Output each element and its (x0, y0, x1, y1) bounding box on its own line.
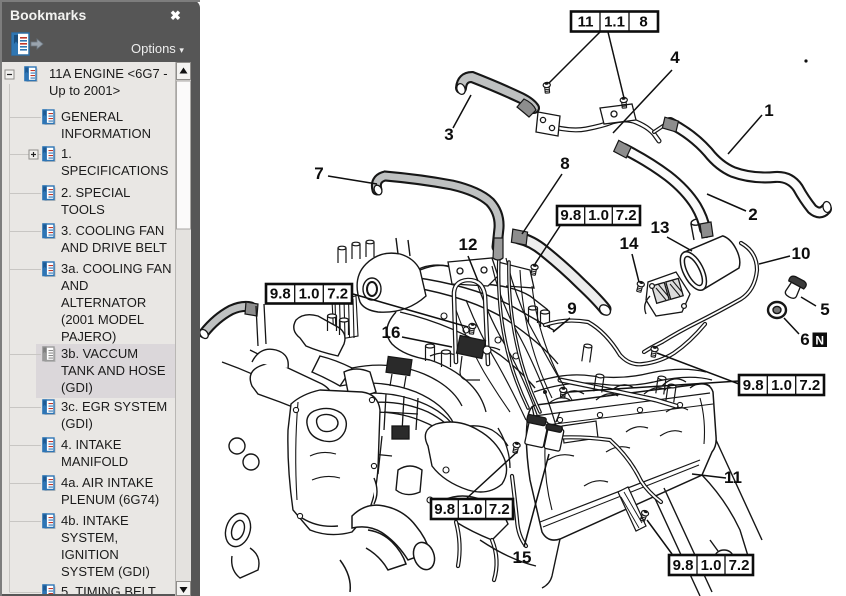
svg-text:(GDI): (GDI) (61, 380, 93, 395)
svg-text:12: 12 (459, 235, 478, 254)
svg-text:10: 10 (792, 244, 811, 263)
svg-text:7.2: 7.2 (489, 501, 510, 518)
svg-text:13: 13 (651, 218, 670, 237)
svg-text:11: 11 (578, 13, 594, 30)
svg-text:ALTERNATOR: ALTERNATOR (61, 295, 146, 310)
svg-text:1.1: 1.1 (604, 13, 625, 30)
svg-text:AND DRIVE BELT: AND DRIVE BELT (61, 240, 167, 255)
svg-text:3c. EGR SYSTEM: 3c. EGR SYSTEM (61, 399, 167, 414)
svg-text:4b. INTAKE: 4b. INTAKE (61, 513, 129, 528)
svg-text:N: N (815, 334, 824, 348)
svg-text:9.8: 9.8 (270, 285, 291, 302)
svg-text:7: 7 (314, 164, 323, 183)
svg-text:TOOLS: TOOLS (61, 202, 105, 217)
svg-text:TANK AND HOSE: TANK AND HOSE (61, 363, 166, 378)
svg-text:4a. AIR INTAKE: 4a. AIR INTAKE (61, 475, 154, 490)
svg-text:1.0: 1.0 (299, 285, 320, 302)
svg-text:15: 15 (513, 548, 532, 567)
svg-text:1.0: 1.0 (701, 557, 722, 574)
svg-text:4: 4 (670, 48, 680, 67)
svg-text:1.0: 1.0 (771, 377, 792, 394)
svg-text:1: 1 (764, 101, 773, 120)
svg-text:9.8: 9.8 (743, 377, 764, 394)
svg-text:3a. COOLING FAN: 3a. COOLING FAN (61, 261, 172, 276)
svg-text:SPECIFICATIONS: SPECIFICATIONS (61, 163, 169, 178)
svg-text:1.0: 1.0 (462, 501, 483, 518)
svg-text:14: 14 (620, 234, 639, 253)
svg-text:GENERAL: GENERAL (61, 109, 123, 124)
svg-text:7.2: 7.2 (799, 377, 820, 394)
svg-text:9: 9 (567, 299, 576, 318)
svg-text:2. SPECIAL: 2. SPECIAL (61, 185, 130, 200)
svg-text:9.8: 9.8 (560, 207, 581, 224)
svg-text:4. INTAKE: 4. INTAKE (61, 437, 122, 452)
svg-text:5. TIMING BELT: 5. TIMING BELT (61, 584, 156, 594)
svg-text:2: 2 (748, 205, 757, 224)
svg-text:(2001 MODEL: (2001 MODEL (61, 312, 144, 327)
svg-text:9.8: 9.8 (673, 557, 694, 574)
svg-text:PLENUM (6G74): PLENUM (6G74) (61, 492, 159, 507)
svg-text:IGNITION: IGNITION (61, 547, 119, 562)
svg-text:SYSTEM (GDI): SYSTEM (GDI) (61, 564, 150, 579)
svg-text:7.2: 7.2 (327, 285, 348, 302)
svg-text:5: 5 (820, 300, 829, 319)
svg-text:MANIFOLD: MANIFOLD (61, 454, 128, 469)
svg-text:11A ENGINE <6G7 -: 11A ENGINE <6G7 - (49, 66, 168, 81)
svg-text:11: 11 (724, 468, 742, 487)
svg-text:PAJERO): PAJERO) (61, 329, 116, 344)
svg-text:16: 16 (382, 323, 401, 342)
svg-text:1.0: 1.0 (588, 207, 609, 224)
svg-text:3. COOLING FAN: 3. COOLING FAN (61, 223, 164, 238)
svg-text:7.2: 7.2 (616, 207, 637, 224)
svg-text:6: 6 (800, 330, 809, 349)
svg-text:7.2: 7.2 (729, 557, 750, 574)
svg-text:8: 8 (639, 13, 647, 30)
svg-text:9.8: 9.8 (434, 501, 455, 518)
svg-text:1.: 1. (61, 146, 72, 161)
svg-text:(GDI): (GDI) (61, 416, 93, 431)
svg-text:AND: AND (61, 278, 88, 293)
svg-text:SYSTEM,: SYSTEM, (61, 530, 118, 545)
svg-text:8: 8 (560, 154, 569, 173)
svg-text:Up to 2001>: Up to 2001> (49, 83, 120, 98)
svg-text:3b. VACCUM: 3b. VACCUM (61, 346, 138, 361)
svg-text:INFORMATION: INFORMATION (61, 126, 151, 141)
svg-text:3: 3 (444, 125, 453, 144)
